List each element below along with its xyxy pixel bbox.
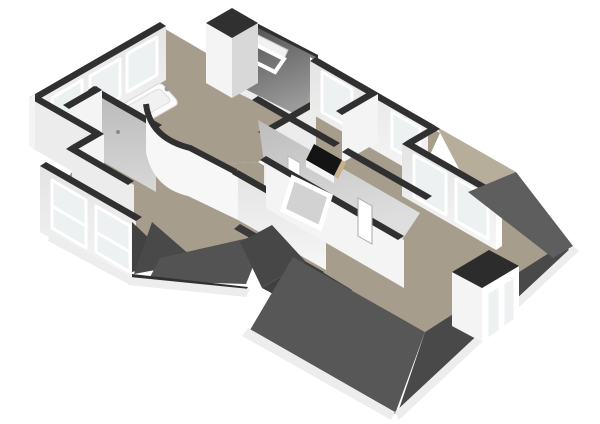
chimney-shaft bbox=[206, 8, 258, 98]
west-edge-trim bbox=[29, 94, 35, 150]
door-handle bbox=[116, 130, 120, 134]
dormer-pane-1 bbox=[487, 285, 500, 340]
master-door bbox=[358, 198, 372, 244]
floorplan-3d-render bbox=[0, 0, 600, 424]
dormer-pane-2 bbox=[503, 276, 515, 328]
bath-faucet bbox=[165, 87, 170, 92]
